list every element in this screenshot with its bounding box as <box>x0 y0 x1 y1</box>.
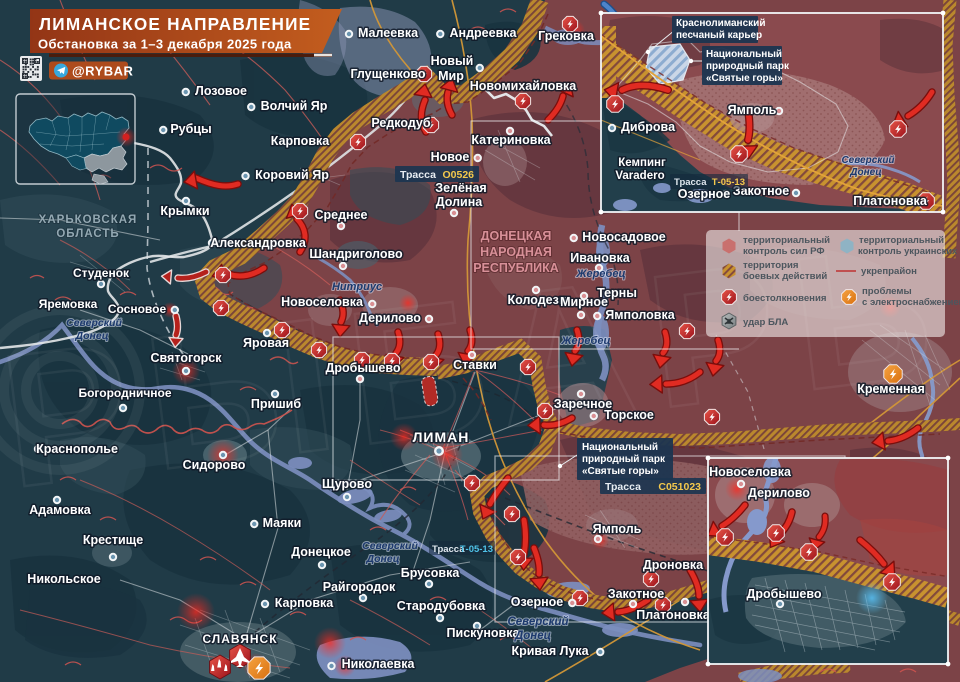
svg-text:Нитриус: Нитриус <box>332 281 382 293</box>
svg-text:Жеребец: Жеребец <box>575 268 625 280</box>
svg-text:Крымки: Крымки <box>160 204 209 218</box>
svg-text:Пришиб: Пришиб <box>251 397 301 411</box>
svg-text:Национальный: Национальный <box>706 49 782 60</box>
svg-text:Новый: Новый <box>431 54 474 68</box>
svg-text:Донец: Донец <box>849 167 881 178</box>
svg-text:Донец: Донец <box>75 330 109 342</box>
svg-text:Ямполовка: Ямполовка <box>605 308 675 322</box>
svg-text:удар БЛА: удар БЛА <box>743 317 788 328</box>
svg-text:природный парк: природный парк <box>706 61 790 72</box>
svg-text:Колодези: Колодези <box>508 293 567 307</box>
svg-text:Грековка: Грековка <box>538 29 595 43</box>
svg-text:контроль сил РФ: контроль сил РФ <box>743 246 825 257</box>
svg-text:боевых действий: боевых действий <box>743 271 827 282</box>
svg-text:Дробышево: Дробышево <box>325 361 400 375</box>
svg-text:«Святые горы»: «Святые горы» <box>582 466 659 477</box>
svg-text:Ямполь: Ямполь <box>593 522 642 536</box>
svg-text:Новомихайловка: Новомихайловка <box>470 79 578 93</box>
svg-text:Донец: Донец <box>514 630 551 642</box>
svg-text:территориальный: территориальный <box>859 234 944 245</box>
svg-text:Карповка: Карповка <box>275 596 334 610</box>
svg-text:Щурово: Щурово <box>322 477 372 491</box>
svg-text:Пискуновка: Пискуновка <box>447 626 521 640</box>
svg-text:СЛАВЯНСК: СЛАВЯНСК <box>202 632 277 646</box>
svg-text:Лозовое: Лозовое <box>195 84 247 98</box>
svg-text:Трасса: Трасса <box>605 481 641 493</box>
svg-text:Трасса: Трасса <box>400 169 436 181</box>
svg-text:Дерилово: Дерилово <box>359 311 421 325</box>
svg-text:Богородничное: Богородничное <box>78 386 171 400</box>
svg-text:ЛИМАН: ЛИМАН <box>413 429 470 445</box>
svg-text:РЕСПУБЛИКА: РЕСПУБЛИКА <box>473 261 559 275</box>
svg-text:Адамовка: Адамовка <box>29 503 92 517</box>
svg-text:Кременная: Кременная <box>857 382 925 396</box>
svg-text:Никольское: Никольское <box>27 572 100 586</box>
svg-text:Северский: Северский <box>362 540 418 552</box>
svg-text:Озерное: Озерное <box>511 595 564 609</box>
svg-text:Платоновка: Платоновка <box>853 194 928 208</box>
svg-text:@RYBAR: @RYBAR <box>72 64 134 79</box>
svg-text:Рубцы: Рубцы <box>170 122 211 136</box>
svg-text:ХАРЬКОВСКАЯ: ХАРЬКОВСКАЯ <box>39 214 138 226</box>
svg-text:Среднее: Среднее <box>314 208 367 222</box>
svg-text:Северский: Северский <box>841 155 894 166</box>
svg-text:ДОНЕЦКАЯ: ДОНЕЦКАЯ <box>481 229 552 243</box>
svg-text:Зелёная: Зелёная <box>435 181 486 195</box>
svg-text:Терны: Терны <box>597 286 637 300</box>
svg-text:Новоселовка: Новоселовка <box>709 465 792 479</box>
svg-text:природный парк: природный парк <box>582 454 666 465</box>
svg-text:боестолкновения: боестолкновения <box>743 293 826 304</box>
svg-text:Катериновка: Катериновка <box>471 133 551 147</box>
svg-text:Обстановка за 1–3 декабря 2025: Обстановка за 1–3 декабря 2025 года <box>38 37 292 52</box>
svg-text:Озерное: Озерное <box>678 187 731 201</box>
svg-text:С051023: С051023 <box>658 481 701 493</box>
svg-text:ЛИМАНСКОЕ НАПРАВЛЕНИЕ: ЛИМАНСКОЕ НАПРАВЛЕНИЕ <box>39 14 311 34</box>
svg-text:Стародубовка: Стародубовка <box>397 599 487 613</box>
svg-text:Андреевка: Андреевка <box>450 26 518 40</box>
svg-text:Трасса: Трасса <box>674 177 707 188</box>
svg-text:Донецкое: Донецкое <box>291 545 351 559</box>
svg-text:Райгородок: Райгородок <box>323 580 396 594</box>
svg-text:Яремовка: Яремовка <box>39 297 98 311</box>
svg-text:ОБЛАСТЬ: ОБЛАСТЬ <box>56 228 119 240</box>
svg-text:Кемпинг: Кемпинг <box>618 157 666 169</box>
svg-text:Николаевка: Николаевка <box>342 657 416 671</box>
svg-text:Т-05-13: Т-05-13 <box>712 177 745 188</box>
svg-text:проблемы: проблемы <box>862 286 912 297</box>
svg-text:Кривая Лука: Кривая Лука <box>511 644 589 658</box>
svg-text:Долина: Долина <box>436 195 484 209</box>
svg-text:Краснополье: Краснополье <box>36 442 118 456</box>
svg-text:Редкодуб: Редкодуб <box>371 116 431 130</box>
svg-text:Дробышево: Дробышево <box>746 587 821 601</box>
svg-text:Волчий Яр: Волчий Яр <box>261 99 328 113</box>
svg-text:Малеевка: Малеевка <box>358 26 419 40</box>
svg-text:Яровая: Яровая <box>243 336 289 350</box>
svg-text:НАРОДНАЯ: НАРОДНАЯ <box>480 245 552 259</box>
svg-text:Студенок: Студенок <box>73 266 130 280</box>
svg-text:Новое: Новое <box>431 150 470 164</box>
svg-text:Сидорово: Сидорово <box>183 458 246 472</box>
svg-text:Александровка: Александровка <box>210 236 307 250</box>
svg-text:Национальный: Национальный <box>582 442 658 453</box>
svg-text:Т-05-13: Т-05-13 <box>460 544 493 555</box>
svg-text:Брусовка: Брусовка <box>401 566 461 580</box>
svg-text:укрепрайон: укрепрайон <box>861 266 917 277</box>
svg-text:Коровий Яр: Коровий Яр <box>255 168 329 182</box>
svg-text:Шандриголово: Шандриголово <box>309 247 403 261</box>
svg-text:Крестище: Крестище <box>83 533 143 547</box>
svg-text:контроль украинских сил: контроль украинских сил <box>858 245 960 256</box>
svg-text:территориальный: территориальный <box>743 235 830 246</box>
svg-text:Закотное: Закотное <box>608 587 665 601</box>
svg-text:Маяки: Маяки <box>263 516 302 530</box>
svg-text:территория: территория <box>743 260 798 271</box>
svg-text:Святогорск: Святогорск <box>151 351 223 365</box>
svg-text:Сосновое: Сосновое <box>108 302 167 316</box>
svg-text:Северский: Северский <box>66 317 122 329</box>
svg-text:Жеребец: Жеребец <box>560 335 610 347</box>
svg-text:О0526: О0526 <box>442 169 474 181</box>
svg-text:Новоселовка: Новоселовка <box>281 295 364 309</box>
svg-text:«Святые горы»: «Святые горы» <box>706 73 783 84</box>
svg-text:Глущенково: Глущенково <box>350 67 425 81</box>
svg-text:Мир: Мир <box>438 69 464 83</box>
svg-text:Краснолиманский: Краснолиманский <box>676 18 765 29</box>
svg-text:Заречное: Заречное <box>554 397 613 411</box>
svg-text:с электроснабжением: с электроснабжением <box>862 297 960 308</box>
svg-text:Северский: Северский <box>507 616 568 628</box>
svg-text:песчаный карьер: песчаный карьер <box>676 30 762 41</box>
svg-text:Диброва: Диброва <box>621 120 676 134</box>
svg-text:Varadero: Varadero <box>615 170 664 182</box>
svg-text:Ивановка: Ивановка <box>570 251 631 265</box>
svg-text:Платоновка: Платоновка <box>636 608 711 622</box>
svg-text:Донец: Донец <box>366 553 400 565</box>
svg-text:Ставки: Ставки <box>453 358 497 372</box>
svg-text:Ямполь: Ямполь <box>728 103 777 117</box>
svg-text:Дроновка: Дроновка <box>643 558 704 572</box>
svg-text:Новосадовое: Новосадовое <box>582 230 665 244</box>
svg-text:Карповка: Карповка <box>271 134 330 148</box>
svg-text:Дерилово: Дерилово <box>748 486 810 500</box>
